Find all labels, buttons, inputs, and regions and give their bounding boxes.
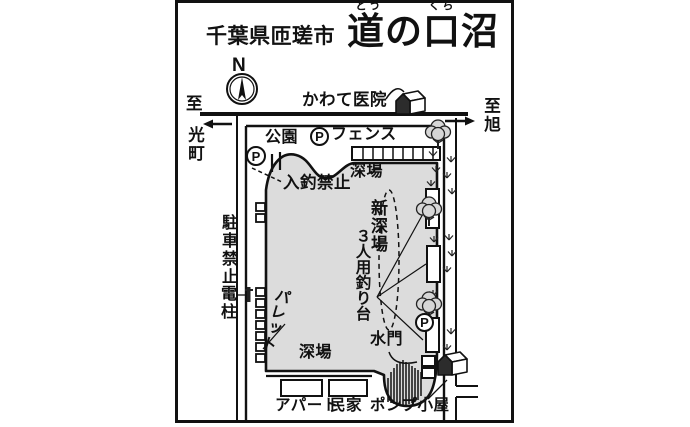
dest-left-name-label: 光町 xyxy=(186,126,203,163)
sluice-gate-boxes xyxy=(422,356,435,378)
parking-icon-right: P xyxy=(415,313,434,332)
fence-icon xyxy=(352,147,440,160)
utility-pole-label: 電柱 xyxy=(218,285,234,321)
map-drawing xyxy=(0,0,690,427)
private-house-label: 民家 xyxy=(330,398,362,414)
no-parking-label: 駐車禁止 xyxy=(219,214,235,286)
new-deep-area-label: 新深場 xyxy=(369,199,386,253)
ruby-dou: どう xyxy=(350,1,388,13)
ruby-kuchi: くち xyxy=(423,1,461,13)
compass-icon xyxy=(227,74,257,104)
pump-shed-label: ポンプ小屋 xyxy=(370,398,450,414)
private-house-box xyxy=(329,380,367,396)
apartment-box xyxy=(281,380,322,396)
dest-left-to-label: 至 xyxy=(186,96,203,113)
park-label: 公園 xyxy=(265,130,298,146)
compass-north-label: N xyxy=(232,56,246,75)
map-title: 道の口沼 xyxy=(347,13,499,50)
map-subtitle: 千葉県匝瑳市 xyxy=(206,26,335,47)
clinic-label: かわて医院 xyxy=(302,92,387,109)
fence-label: フェンス xyxy=(331,127,397,143)
deep-area-label-upper: 深場 xyxy=(350,164,383,180)
map-canvas: 千葉県匝瑳市 道の口沼 どう くち N 至 光町 至旭 かわて医院 公園 フェン… xyxy=(0,0,690,427)
deep-area-label-lower: 深場 xyxy=(299,345,332,361)
dest-right-label: 至旭 xyxy=(482,97,499,134)
parking-icon-park: P xyxy=(246,146,266,166)
no-fishing-entry-label: 入釣禁止 xyxy=(283,175,351,192)
parking-icon-fence: P xyxy=(310,127,329,146)
sluice-gate-label: 水門 xyxy=(370,332,403,348)
three-person-platform-label: ３人用釣り台 xyxy=(354,228,370,321)
